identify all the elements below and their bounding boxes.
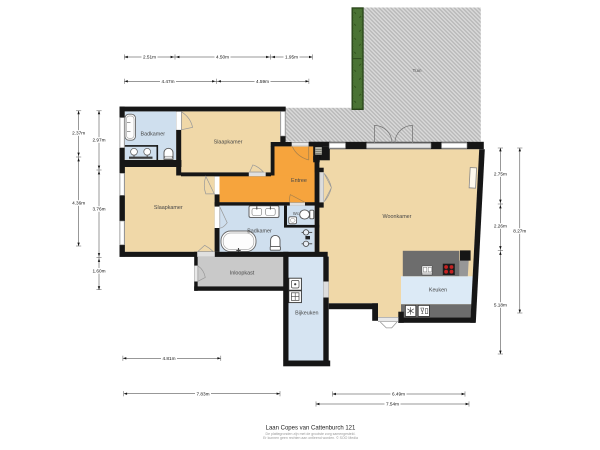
svg-text:7.83m: 7.83m (196, 391, 209, 396)
svg-text:Slaapkamer: Slaapkamer (154, 205, 183, 211)
svg-text:2.51m: 2.51m (143, 55, 156, 60)
svg-text:7.54m: 7.54m (386, 402, 399, 407)
svg-text:4.47m: 4.47m (161, 79, 174, 84)
svg-text:Er kunnen geen rechten aan ont: Er kunnen geen rechten aan ontleend word… (263, 436, 358, 440)
svg-text:1.95m: 1.95m (285, 55, 298, 60)
svg-text:Badkamer: Badkamer (247, 229, 272, 235)
svg-text:Slaapkamer: Slaapkamer (214, 140, 243, 146)
svg-text:8.27m: 8.27m (513, 229, 526, 234)
svg-text:4.36m: 4.36m (72, 201, 85, 206)
svg-text:2.97m: 2.97m (92, 138, 105, 143)
svg-text:2.75m: 2.75m (494, 172, 507, 177)
svg-text:Keuken: Keuken (429, 288, 447, 294)
svg-text:4.50m: 4.50m (216, 55, 229, 60)
svg-text:4.59m: 4.59m (256, 79, 269, 84)
svg-text:Laan Copes van Cattenburch 121: Laan Copes van Cattenburch 121 (266, 426, 356, 432)
svg-text:2.37m: 2.37m (72, 131, 85, 136)
svg-text:Inloopkast: Inloopkast (230, 270, 255, 276)
svg-text:Woonkamer: Woonkamer (383, 214, 412, 220)
svg-text:3.76m: 3.76m (92, 207, 105, 212)
svg-text:Entree: Entree (291, 178, 307, 184)
svg-text:1.60m: 1.60m (92, 269, 105, 274)
svg-text:4.81m: 4.81m (162, 356, 175, 361)
svg-text:Wc: Wc (293, 211, 299, 216)
svg-text:Bijkeuken: Bijkeuken (295, 310, 318, 316)
svg-text:2.26m: 2.26m (494, 224, 507, 229)
svg-text:6.49m: 6.49m (392, 392, 405, 397)
svg-text:5.18m: 5.18m (494, 303, 507, 308)
svg-text:Tuin: Tuin (413, 68, 422, 73)
svg-text:Badkamer: Badkamer (141, 132, 166, 138)
